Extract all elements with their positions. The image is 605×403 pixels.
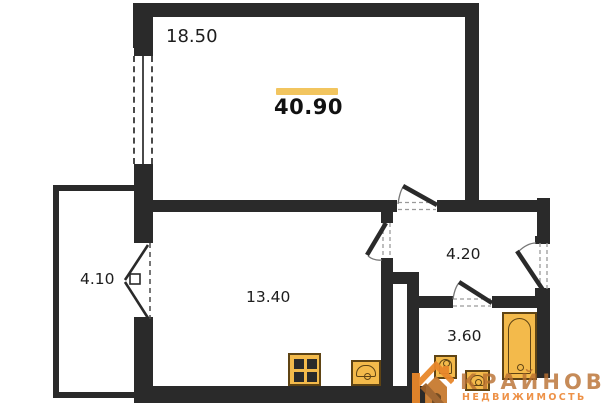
brand-name: КРАЙНОВ — [460, 370, 605, 394]
total-area-accent-bar — [276, 88, 338, 95]
balcony-french-window — [125, 243, 150, 319]
brand-tagline: НЕДВИЖИМОСТЬ — [462, 392, 587, 403]
total-area-label: 40.90 — [274, 95, 343, 119]
door-living-hallway — [398, 186, 437, 210]
door-kitchen-hallway — [367, 223, 390, 260]
door-bathroom — [453, 282, 492, 306]
kitchen-sink-icon — [351, 360, 381, 386]
total-area: 40.90 — [274, 88, 343, 119]
floorplan: 18.50 4.10 13.40 4.20 3.60 40.90 КРАЙНОВ… — [0, 0, 605, 403]
living-room-area-label: 18.50 — [166, 26, 218, 47]
door-entrance — [517, 243, 547, 290]
brand-logo: КРАЙНОВ НЕДВИЖИМОСТЬ — [410, 356, 605, 403]
kitchen-area-label: 13.40 — [246, 288, 290, 306]
house-k-icon — [412, 359, 454, 403]
hallway-area-label: 4.20 — [446, 245, 481, 263]
stove-icon — [288, 353, 321, 386]
bathroom-area-label: 3.60 — [447, 327, 482, 345]
balcony-area-label: 4.10 — [80, 270, 115, 288]
